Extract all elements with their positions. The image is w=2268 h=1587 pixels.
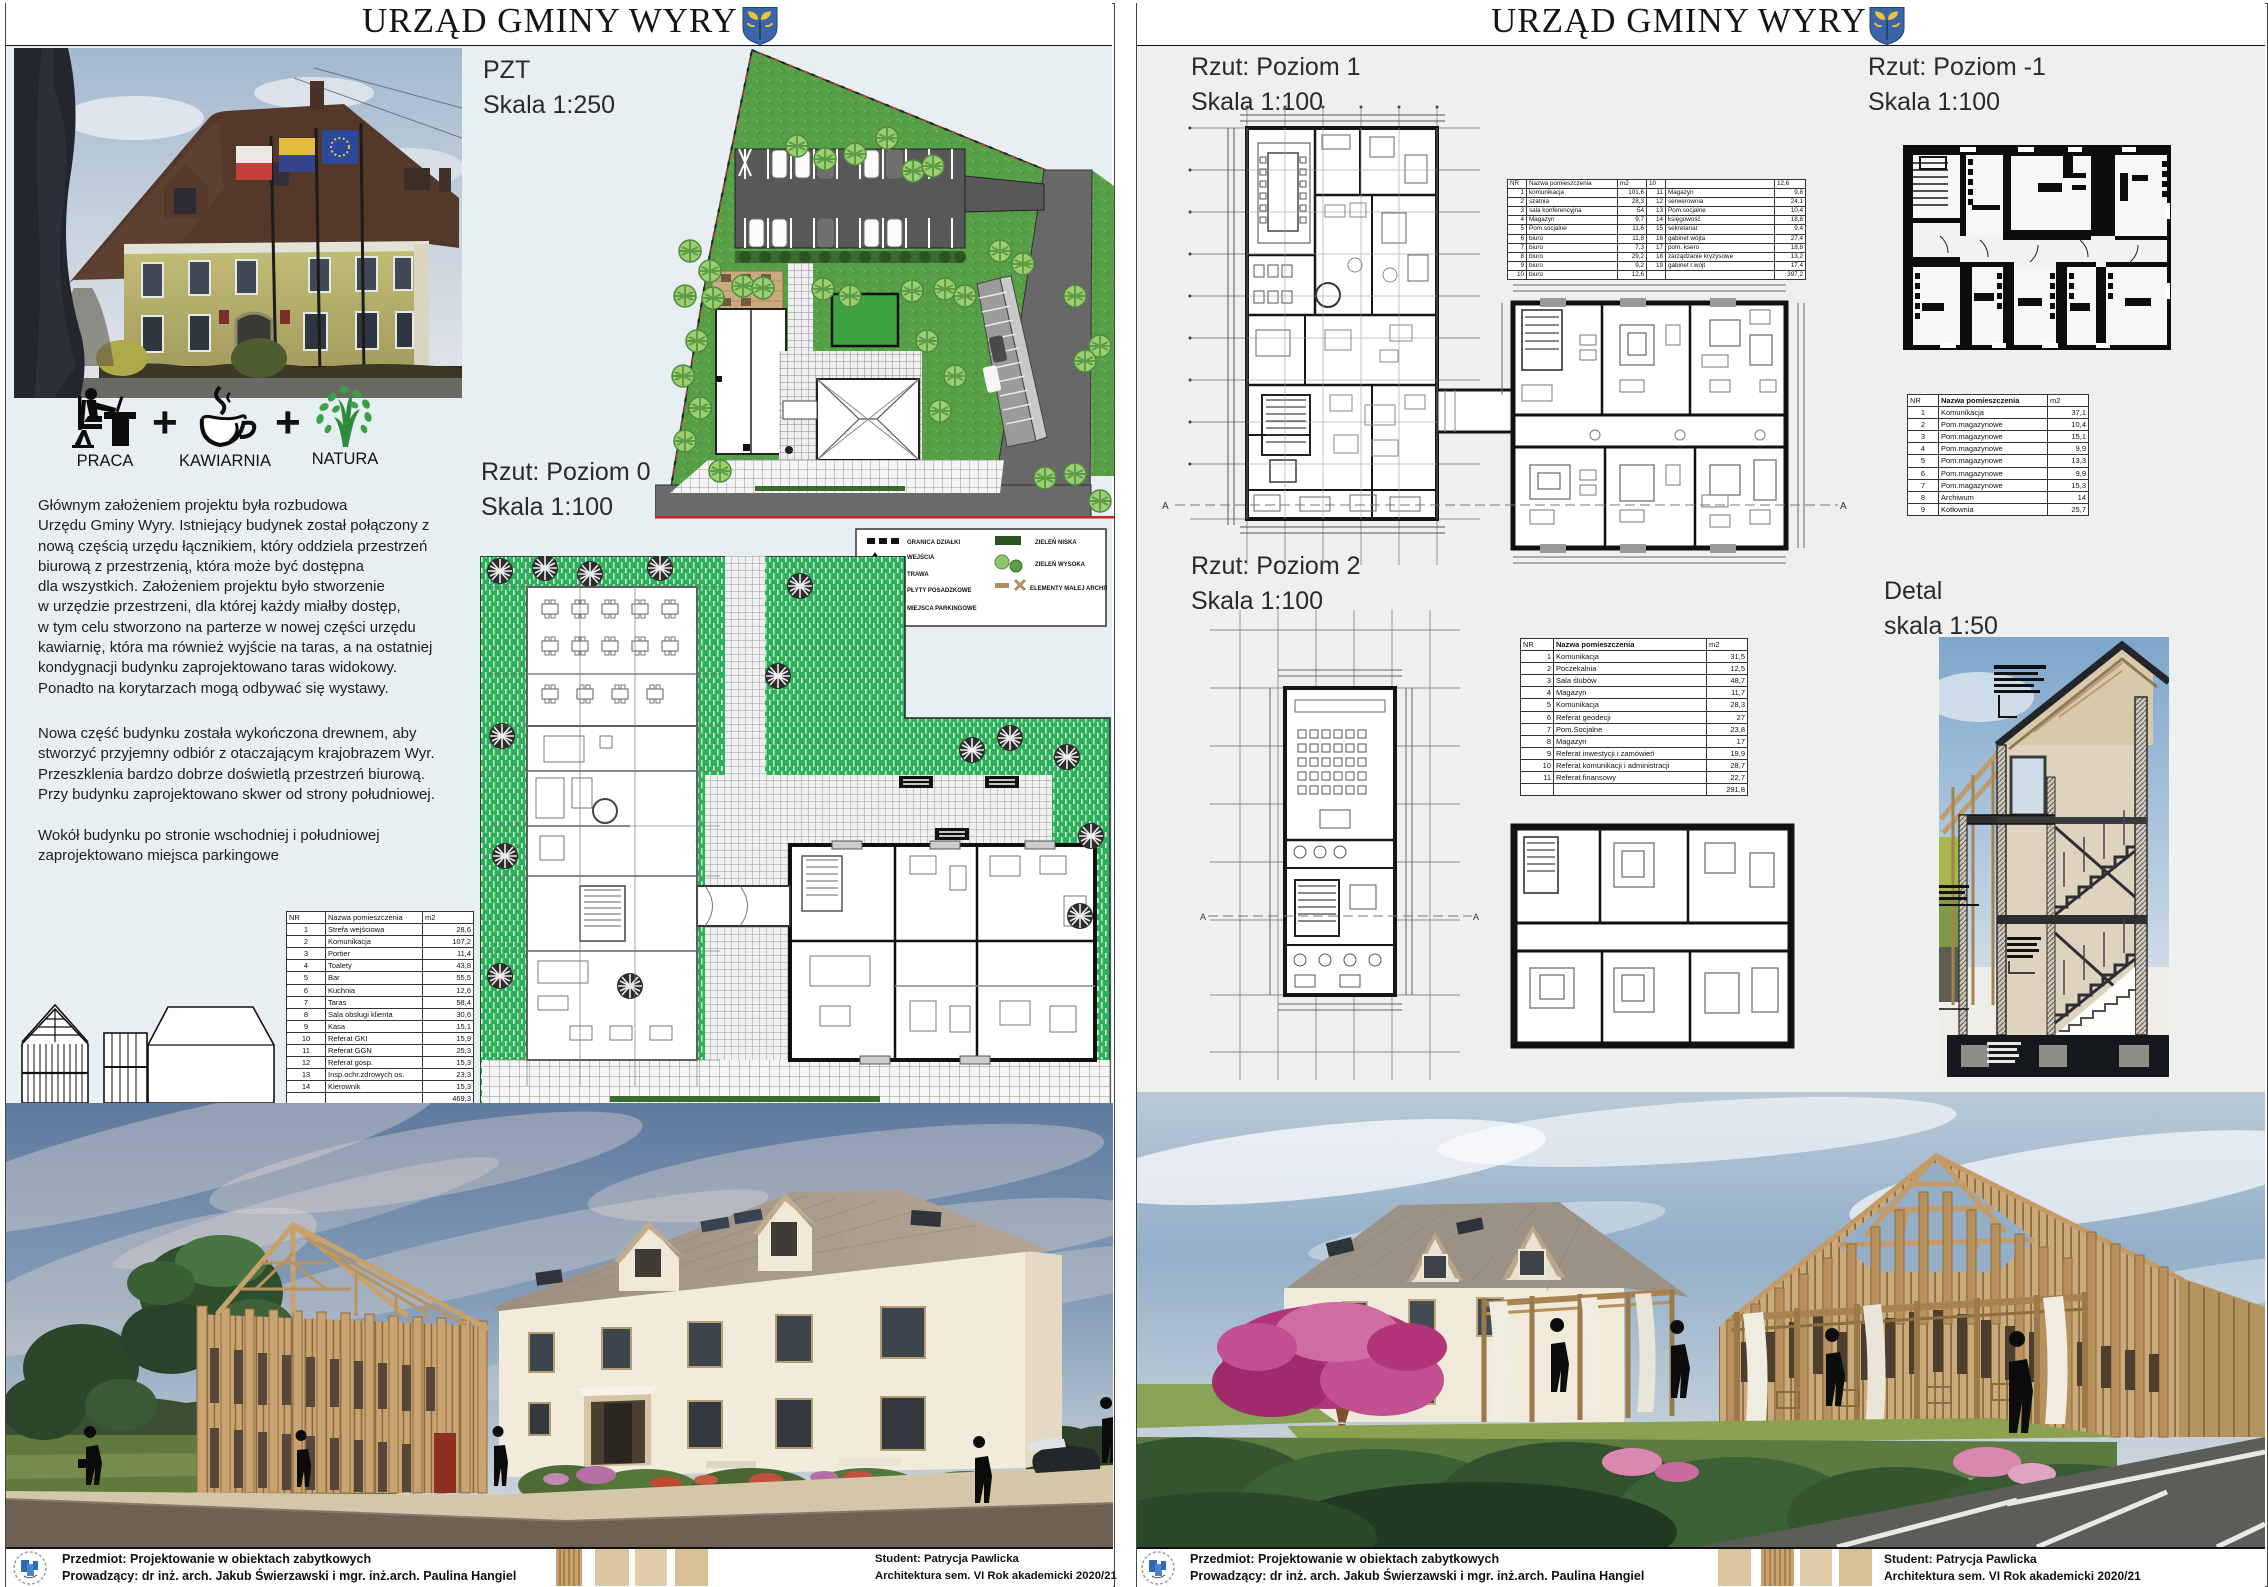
svg-text:GRANICA DZIAŁKI: GRANICA DZIAŁKI bbox=[907, 540, 960, 546]
svg-text:A: A bbox=[1840, 501, 1847, 512]
svg-text:ZIELEŃ NISKA: ZIELEŃ NISKA bbox=[1035, 538, 1077, 546]
svg-text:A: A bbox=[1200, 912, 1206, 922]
svg-text:A: A bbox=[1473, 912, 1479, 922]
svg-text:A: A bbox=[1162, 501, 1169, 512]
